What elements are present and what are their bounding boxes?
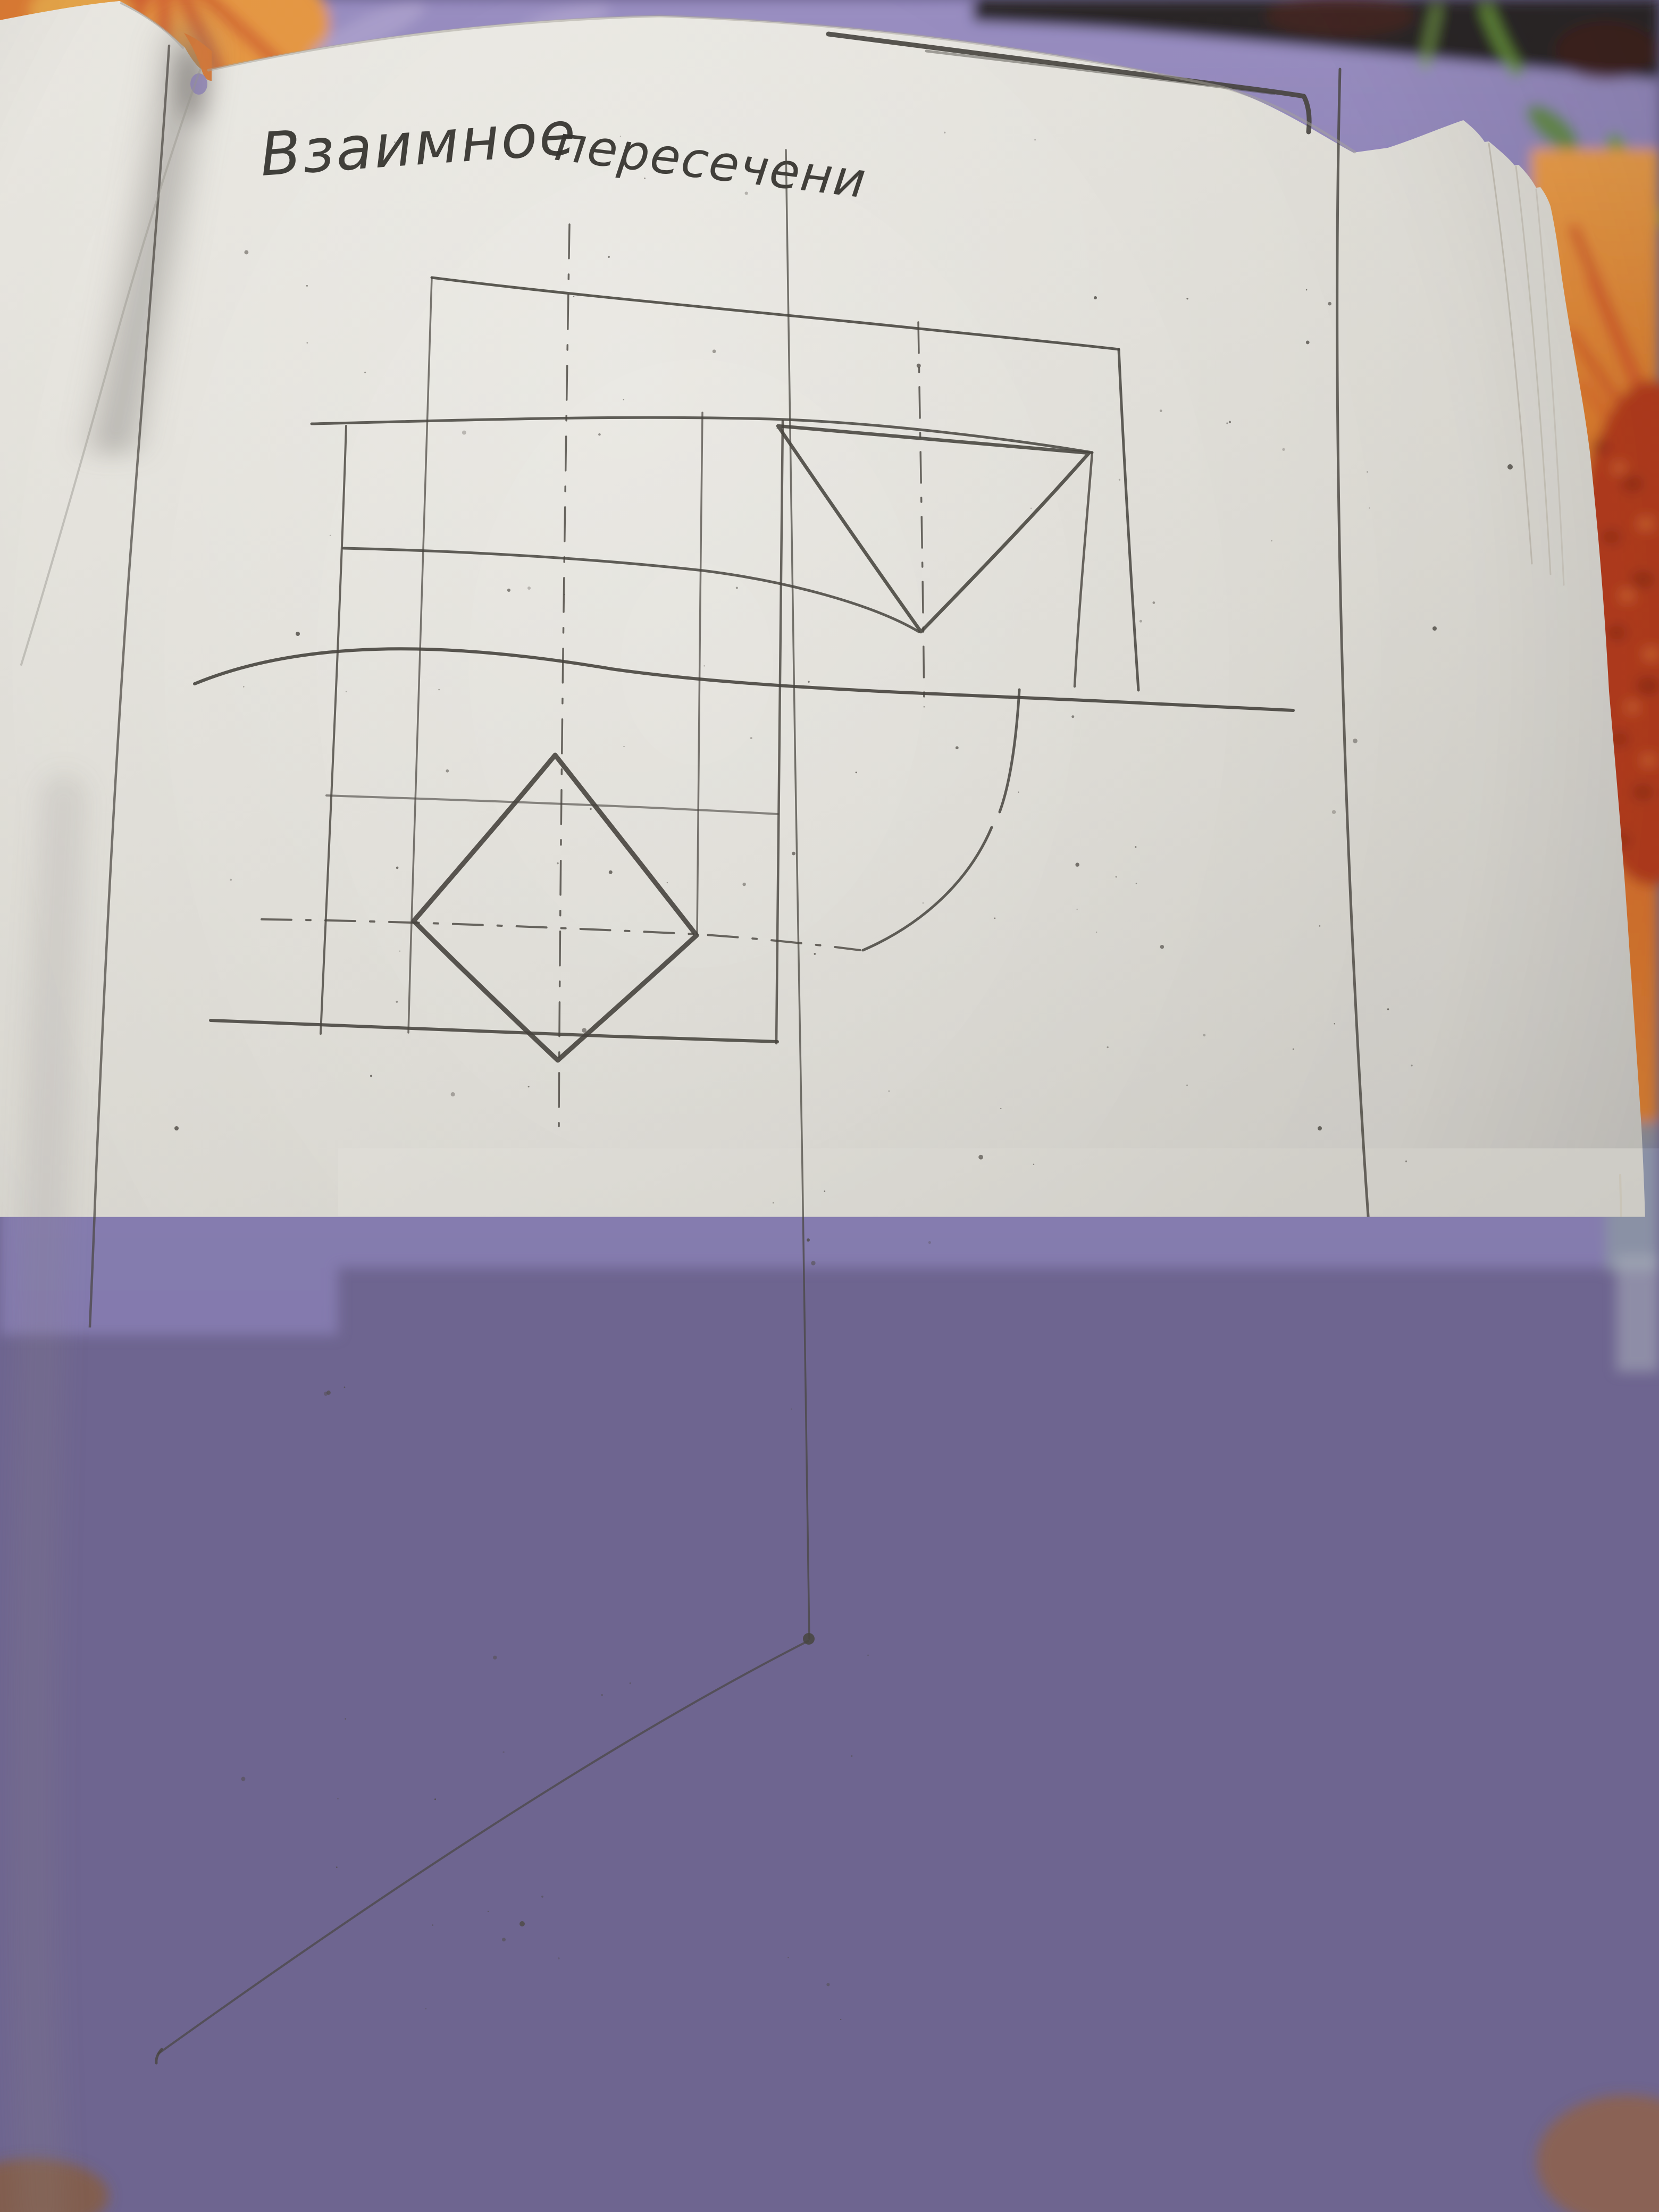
photo-vignette bbox=[0, 0, 1659, 2212]
notebook-photo: Взаимное пересечение поверхностей bbox=[0, 0, 1659, 2212]
photo-canvas: Взаимное пересечение поверхностей bbox=[0, 0, 1659, 2212]
